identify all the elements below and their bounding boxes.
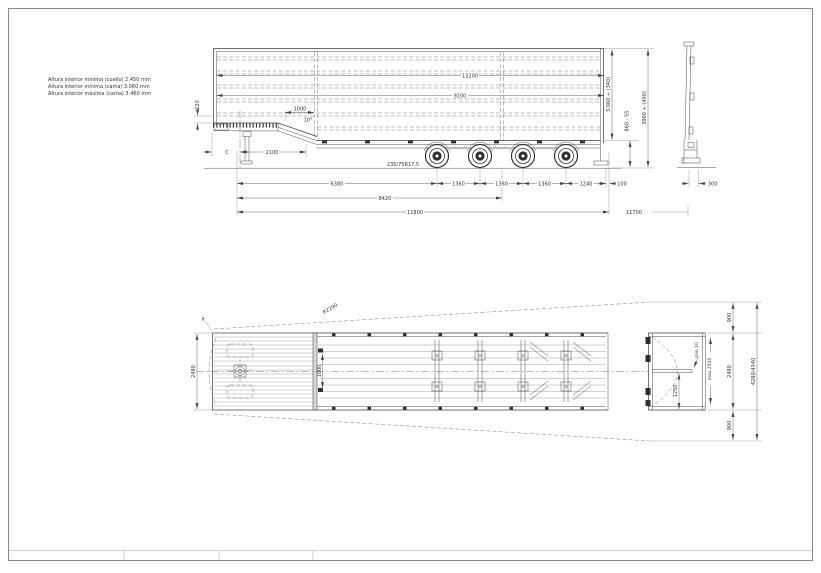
landing-gear bbox=[241, 132, 252, 165]
axle-wheels bbox=[424, 142, 579, 167]
dim-9200: 9200 bbox=[454, 94, 467, 100]
dim-8420: 8420 bbox=[379, 196, 392, 202]
wheel-3 bbox=[510, 142, 536, 167]
note-line-2: Altura interior mínima (cama) 3.060 mm bbox=[48, 83, 150, 90]
dim-max-2510: max 2510 bbox=[707, 358, 713, 381]
dim-1240: 1240 bbox=[580, 182, 593, 188]
dim-2480-rear: 2480 bbox=[727, 365, 733, 378]
note-line-3: Altura interior máxima (cama) 3.460 mm bbox=[48, 90, 151, 97]
plan-view: 2480 R2290 8 1000 bbox=[191, 302, 650, 441]
axle-plan-3 bbox=[518, 340, 528, 402]
dim-interior-height: 3.060 + (340) bbox=[606, 77, 612, 112]
dim-1360-1: 1360 bbox=[452, 182, 465, 188]
note-line-1: Altura interior mínima (cuello) 2.450 mm bbox=[48, 76, 151, 83]
curtain-plank-lines bbox=[217, 57, 600, 130]
axle-plan-1 bbox=[432, 340, 442, 402]
wheel-4 bbox=[553, 142, 579, 167]
dim-1360-2: 1360 bbox=[495, 182, 508, 188]
dim-900-bottom: 900 bbox=[727, 421, 733, 431]
dim-220: 220 bbox=[195, 100, 201, 110]
dim-1360-3: 1360 bbox=[538, 182, 551, 188]
dim-11700: 11700 bbox=[626, 210, 642, 216]
dim-floor-height: 860 - 55 bbox=[625, 111, 631, 132]
dim-c: C bbox=[225, 150, 229, 156]
kingpin-plan bbox=[228, 359, 252, 383]
fifth-wheel-cutout-top bbox=[227, 344, 253, 357]
axle-plan-2 bbox=[475, 340, 485, 402]
dim-1250: 1250 bbox=[673, 385, 679, 398]
trailer-body-outline bbox=[214, 49, 604, 144]
axle-plan-4 bbox=[561, 340, 571, 402]
drawing-sheet: Altura interior mínima (cuello) 2.450 mm… bbox=[0, 0, 821, 573]
axle-assemblies-plan bbox=[432, 340, 591, 402]
main-deck-plan bbox=[196, 333, 648, 410]
wheel-2 bbox=[467, 142, 493, 167]
dim-1000-plan: 1000 bbox=[317, 365, 323, 378]
dim-900-top: 900 bbox=[727, 313, 733, 323]
fifth-wheel-cutout-bottom bbox=[227, 385, 253, 398]
rear-door-swing-view: 1250 min 10 max 2510 900 2480 900 4280/4… bbox=[646, 302, 763, 441]
dim-4280-4340: 4280/4340 bbox=[751, 358, 757, 385]
dim-overall-height: 3960 + (400) bbox=[642, 91, 648, 125]
dim-6380: 6380 bbox=[331, 182, 344, 188]
wheel-1 bbox=[424, 142, 450, 167]
notes-block: Altura interior mínima (cuello) 2.450 mm… bbox=[48, 76, 151, 97]
corner-note: 8 bbox=[202, 317, 205, 323]
rear-profile-view: 300 bbox=[677, 42, 718, 188]
dim-13200: 13200 bbox=[462, 74, 478, 80]
dim-2100: 2100 bbox=[266, 150, 279, 156]
radius-label: R2290 bbox=[322, 302, 339, 315]
tyre-size-label: 235/75R17.5 bbox=[387, 162, 419, 168]
dim-11800: 11800 bbox=[407, 210, 423, 216]
dim-300: 300 bbox=[708, 182, 718, 188]
dim-100: 100 bbox=[617, 182, 627, 188]
side-view-dimensions: 13200 9200 220 1000 10° C 2100 235/75R17… bbox=[194, 49, 688, 217]
dim-min-10: min 10 bbox=[694, 342, 700, 358]
gooseneck-deck bbox=[213, 123, 317, 145]
dim-1000-neck: 1000 bbox=[294, 107, 307, 113]
dim-2480-plan: 2480 bbox=[191, 365, 197, 378]
cad-drawing: Altura interior mínima (cuello) 2.450 mm… bbox=[0, 0, 821, 573]
angle-10deg: 10° bbox=[304, 118, 313, 124]
